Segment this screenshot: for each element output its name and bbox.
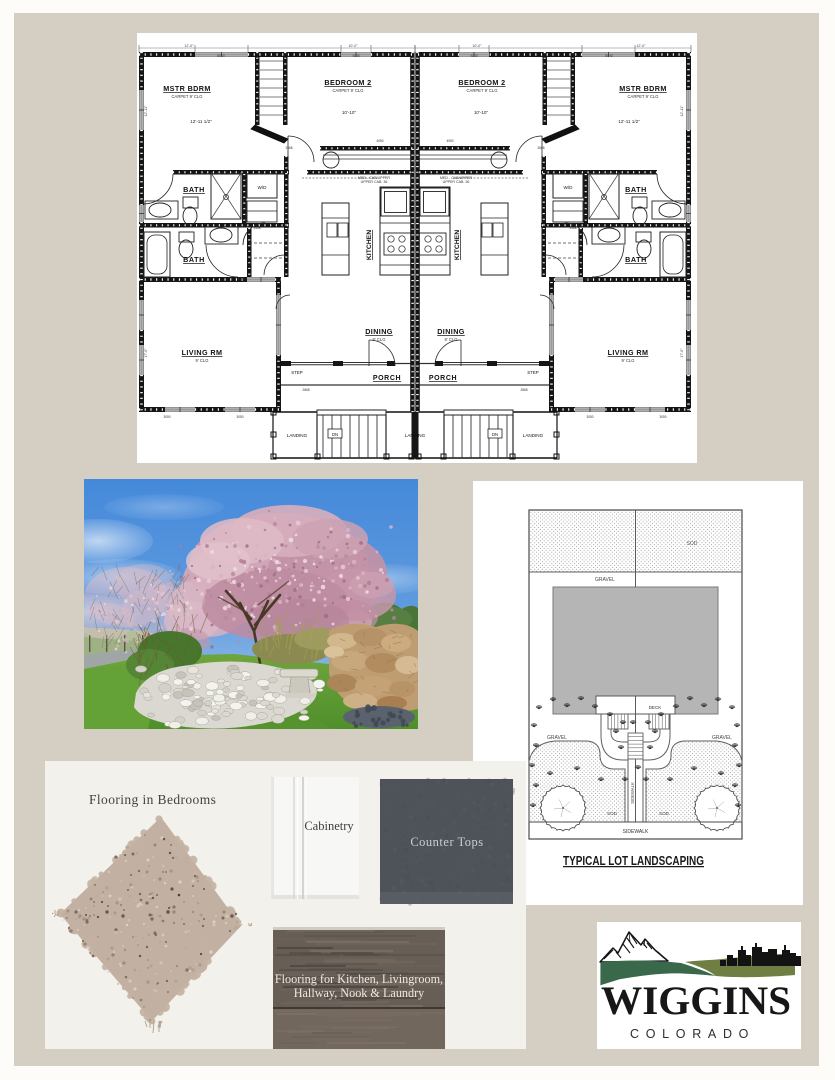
- svg-text:BATH: BATH: [625, 185, 647, 194]
- svg-text:9' CLG: 9' CLG: [373, 337, 386, 342]
- svg-text:10'-0": 10'-0": [348, 44, 358, 48]
- svg-text:CARPET 9' CLG: CARPET 9' CLG: [333, 88, 364, 93]
- svg-text:SOD: SOD: [607, 811, 618, 816]
- svg-text:5040: 5040: [217, 54, 225, 58]
- svg-text:3050: 3050: [586, 415, 593, 419]
- svg-text:GRAVEL: GRAVEL: [712, 735, 732, 741]
- svg-text:2668: 2668: [285, 146, 292, 150]
- svg-text:DN: DN: [332, 432, 338, 437]
- svg-text:2668: 2668: [585, 277, 592, 281]
- svg-text:2468: 2468: [253, 226, 260, 230]
- svg-text:BATH: BATH: [183, 255, 205, 264]
- svg-text:STEP: STEP: [527, 370, 539, 375]
- svg-text:GRAVEL: GRAVEL: [547, 735, 567, 741]
- svg-text:10'-10": 10'-10": [342, 110, 357, 115]
- svg-text:17'-0": 17'-0": [144, 348, 148, 358]
- svg-text:W/D: W/D: [564, 185, 574, 190]
- svg-text:12'-11 1/2": 12'-11 1/2": [618, 119, 640, 124]
- svg-text:Counter Tops: Counter Tops: [410, 835, 483, 849]
- svg-text:DN: DN: [492, 432, 498, 437]
- svg-text:DINING: DINING: [437, 327, 465, 336]
- svg-text:CARPET 9' CLG: CARPET 9' CLG: [172, 94, 203, 99]
- svg-text:LANDING: LANDING: [287, 433, 308, 438]
- svg-text:SOD: SOD: [687, 541, 698, 547]
- svg-text:BEDROOM 2: BEDROOM 2: [324, 78, 371, 87]
- svg-text:2868: 2868: [302, 388, 309, 392]
- svg-text:CARPET 9' CLG: CARPET 9' CLG: [467, 88, 498, 93]
- svg-text:2868: 2868: [520, 388, 527, 392]
- svg-text:SIDEWALK: SIDEWALK: [623, 829, 649, 835]
- svg-text:UPPER CAB. 36: UPPER CAB. 36: [443, 180, 470, 184]
- svg-text:BEDROOM 2: BEDROOM 2: [458, 78, 505, 87]
- svg-text:KITCHEN: KITCHEN: [366, 230, 373, 260]
- svg-text:SOD: SOD: [659, 811, 670, 816]
- svg-text:2668: 2668: [537, 146, 544, 150]
- svg-text:3050: 3050: [163, 415, 170, 419]
- svg-text:4050: 4050: [446, 139, 453, 143]
- svg-text:12'-0": 12'-0": [184, 44, 194, 48]
- svg-text:MSTR BDRM: MSTR BDRM: [163, 84, 211, 93]
- svg-text:12'-11": 12'-11": [144, 105, 148, 117]
- svg-text:UPPER CAB. 36: UPPER CAB. 36: [361, 180, 388, 184]
- svg-text:12'-0": 12'-0": [636, 44, 646, 48]
- svg-text:DECK: DECK: [649, 705, 663, 710]
- svg-text:Cabinetry: Cabinetry: [304, 819, 354, 833]
- svg-text:WIGGINS: WIGGINS: [601, 978, 791, 1023]
- svg-text:10'-0": 10'-0": [472, 44, 482, 48]
- svg-text:2468: 2468: [569, 226, 576, 230]
- svg-text:SIDEWALK: SIDEWALK: [630, 782, 635, 804]
- svg-text:LANDING: LANDING: [523, 433, 544, 438]
- svg-text:CARPET 9' CLG: CARPET 9' CLG: [628, 94, 659, 99]
- svg-text:STEP: STEP: [291, 370, 303, 375]
- svg-text:DINING: DINING: [365, 327, 393, 336]
- svg-text:Flooring for Kitchen, Livingro: Flooring for Kitchen, Livingroom,: [275, 972, 443, 986]
- svg-text:4040: 4040: [470, 54, 478, 58]
- svg-text:3050: 3050: [236, 415, 243, 419]
- svg-text:17'-0": 17'-0": [680, 348, 684, 358]
- svg-text:10'-10": 10'-10": [474, 110, 489, 115]
- svg-text:9' CLG: 9' CLG: [622, 358, 635, 363]
- svg-text:BATH: BATH: [625, 255, 647, 264]
- svg-text:5040: 5040: [605, 54, 613, 58]
- svg-text:3050: 3050: [659, 415, 666, 419]
- svg-text:12'-11": 12'-11": [680, 105, 684, 117]
- svg-text:BATH: BATH: [183, 185, 205, 194]
- svg-text:Flooring in Bedrooms: Flooring in Bedrooms: [89, 792, 216, 807]
- svg-text:LIVING RM: LIVING RM: [608, 348, 649, 357]
- svg-text:TYPICAL LOT LANDSCAPING: TYPICAL LOT LANDSCAPING: [563, 854, 704, 868]
- svg-text:4050: 4050: [376, 139, 383, 143]
- svg-text:COLORADO: COLORADO: [630, 1027, 753, 1041]
- svg-text:PORCH: PORCH: [373, 375, 401, 382]
- svg-text:MSTR BDRM: MSTR BDRM: [619, 84, 667, 93]
- svg-text:12'-11 1/2": 12'-11 1/2": [190, 119, 212, 124]
- svg-text:2668: 2668: [237, 277, 244, 281]
- svg-text:4040: 4040: [352, 54, 360, 58]
- svg-text:GRAVEL: GRAVEL: [595, 577, 615, 583]
- svg-text:LANDING: LANDING: [405, 433, 426, 438]
- svg-text:W/D: W/D: [258, 185, 268, 190]
- svg-text:KITCHEN: KITCHEN: [454, 230, 461, 260]
- svg-text:PORCH: PORCH: [429, 375, 457, 382]
- svg-text:LIVING RM: LIVING RM: [182, 348, 223, 357]
- svg-text:9' CLG: 9' CLG: [445, 337, 458, 342]
- svg-text:Hallway, Nook & Laundry: Hallway, Nook & Laundry: [294, 986, 425, 1000]
- svg-text:9' CLG: 9' CLG: [196, 358, 209, 363]
